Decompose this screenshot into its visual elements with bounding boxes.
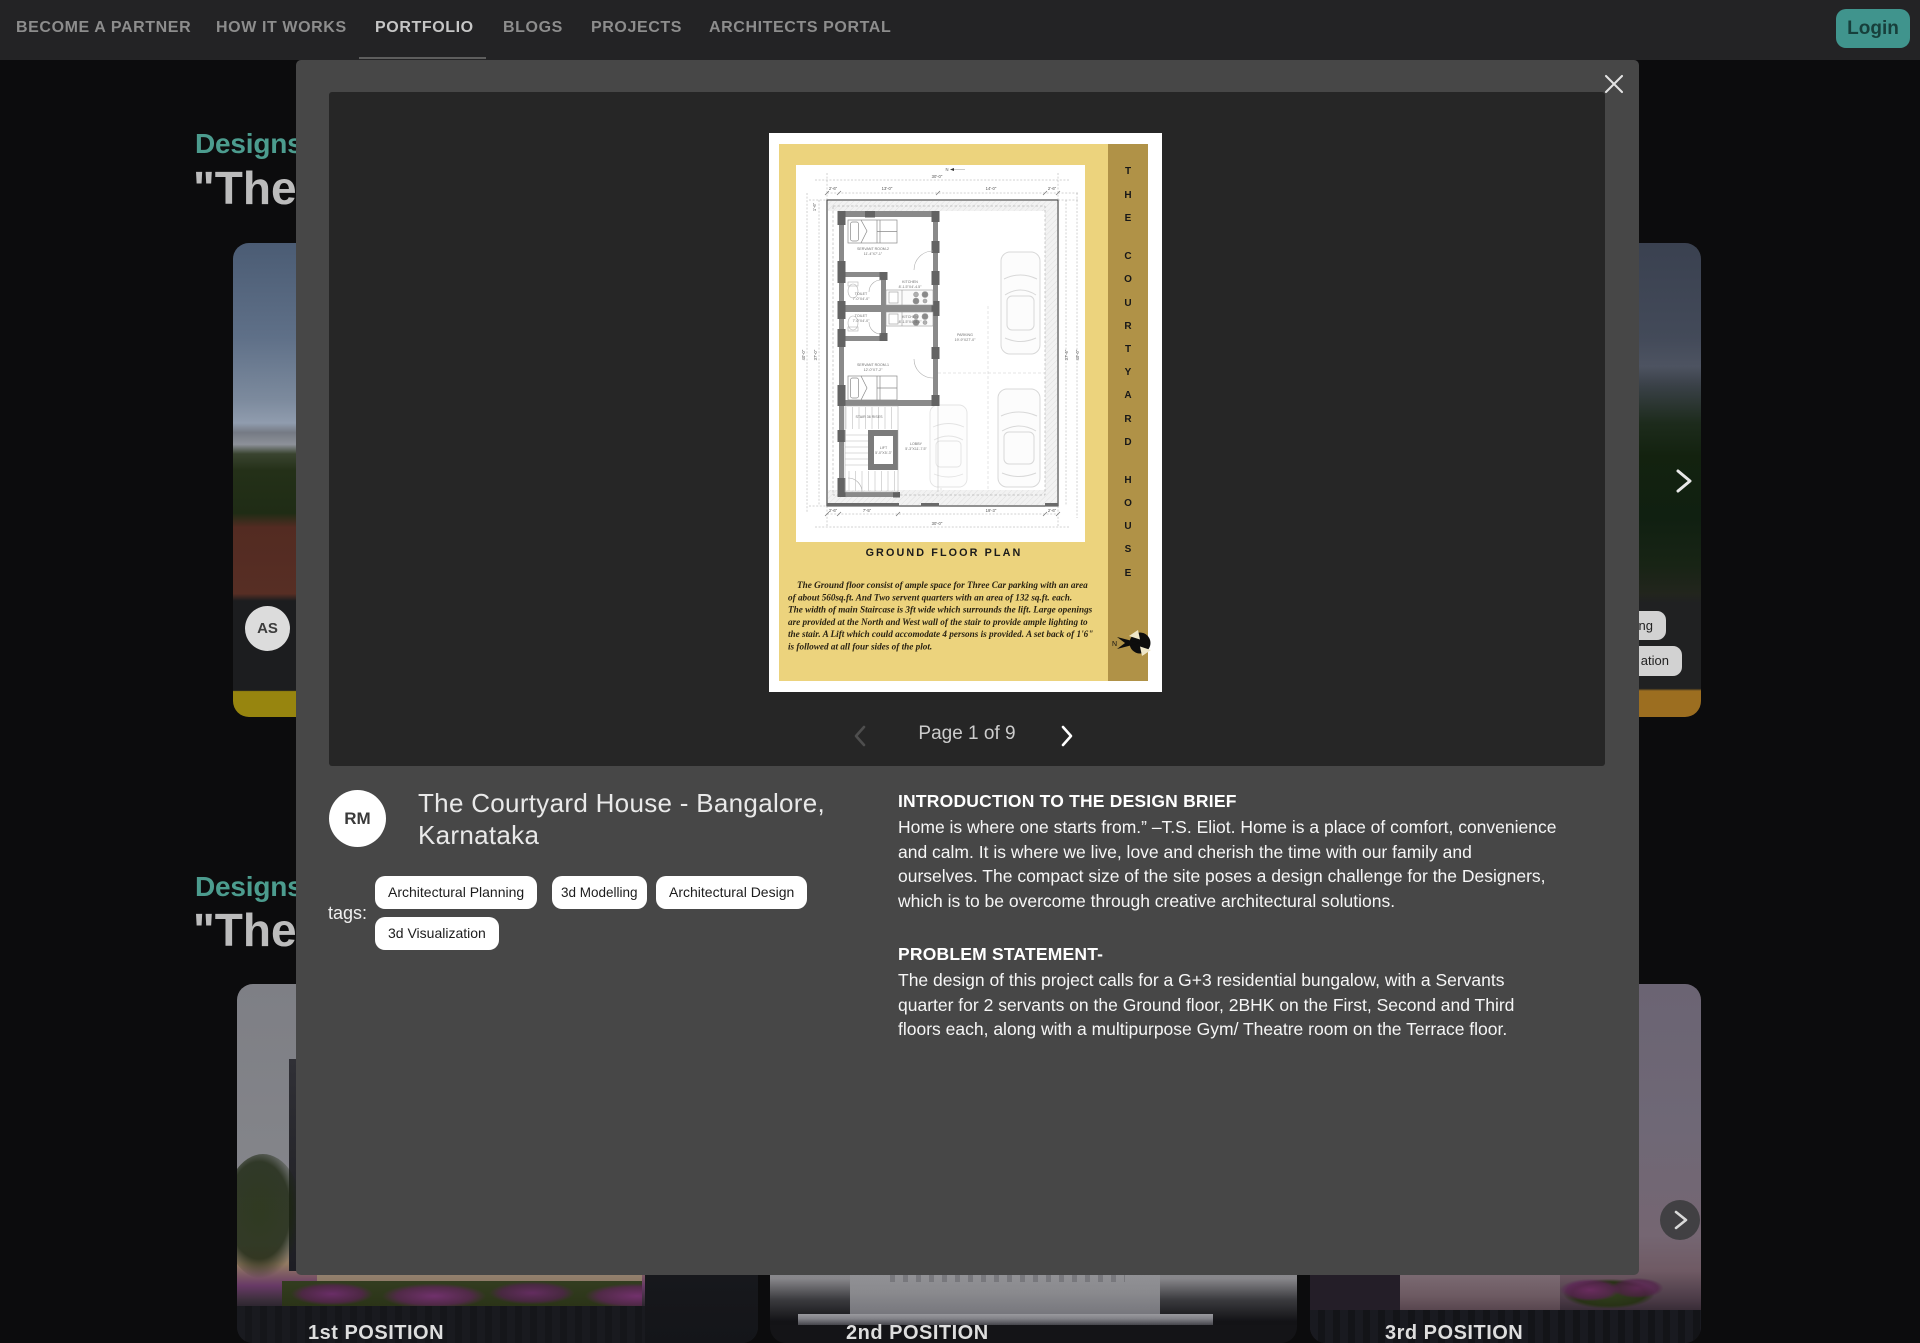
- svg-text:E: E: [1125, 568, 1132, 579]
- svg-text:A: A: [1124, 390, 1131, 401]
- svg-text:SERVANT ROOM-2: SERVANT ROOM-2: [857, 247, 889, 251]
- svg-text:2'-6": 2'-6": [829, 186, 838, 191]
- svg-text:7'-5": 7'-5": [863, 508, 872, 513]
- svg-text:7'-0"X4'-0": 7'-0"X4'-0": [853, 297, 870, 301]
- svg-text:R: R: [1124, 414, 1132, 425]
- svg-text:U: U: [1124, 298, 1131, 309]
- svg-text:S: S: [1125, 544, 1132, 555]
- svg-text:The Ground floor consist of am: The Ground floor consist of ample space …: [797, 580, 1088, 590]
- svg-text:C: C: [1124, 251, 1131, 262]
- svg-text:12'-0"X7'-2": 12'-0"X7'-2": [864, 368, 883, 372]
- svg-text:SERVANT ROOM-1: SERVANT ROOM-1: [857, 363, 889, 367]
- svg-text:11'-4"X7'-1": 11'-4"X7'-1": [864, 252, 883, 256]
- svg-text:O: O: [1124, 498, 1132, 509]
- svg-text:D: D: [1124, 437, 1131, 448]
- svg-text:Y: Y: [1125, 367, 1132, 378]
- svg-text:are provided at the North and: are provided at the North and West wall …: [788, 617, 1088, 627]
- svg-text:TOILET: TOILET: [855, 314, 868, 318]
- svg-text:2'-6": 2'-6": [1048, 186, 1057, 191]
- svg-text:N: N: [1112, 641, 1117, 648]
- svg-text:the stair. A Lift which could: the stair. A Lift which could accomodate…: [788, 629, 1093, 639]
- svg-text:19'-9"X27'-0": 19'-9"X27'-0": [955, 338, 976, 342]
- svg-text:LIFT: LIFT: [880, 446, 888, 450]
- svg-text:8'-1.5"X4'-4.5": 8'-1.5"X4'-4.5": [899, 285, 922, 289]
- svg-text:O: O: [1124, 274, 1132, 285]
- svg-text:2'-6": 2'-6": [829, 508, 838, 513]
- svg-text:KITCHEN: KITCHEN: [902, 280, 918, 284]
- svg-text:19'-3": 19'-3": [986, 508, 997, 513]
- svg-text:8'-1.5"X4'-4.5": 8'-1.5"X4'-4.5": [899, 320, 922, 324]
- svg-text:KITCHEN: KITCHEN: [902, 315, 918, 319]
- svg-text:is followed at all four sides: is followed at all four sides of the plo…: [788, 642, 932, 652]
- svg-text:T: T: [1125, 166, 1131, 177]
- svg-text:H: H: [1124, 475, 1131, 486]
- svg-text:N: N: [945, 167, 948, 172]
- svg-text:STAIR 36 RISES: STAIR 36 RISES: [855, 415, 883, 419]
- svg-text:37'-6": 37'-6": [1064, 349, 1069, 360]
- svg-text:37'-0": 37'-0": [813, 349, 818, 360]
- svg-text:H: H: [1124, 190, 1131, 201]
- svg-text:5'-3"X11'-7.5": 5'-3"X11'-7.5": [905, 447, 927, 451]
- svg-text:of about 560sq.ft. And Two se: of about 560sq.ft. And Two servent quart…: [788, 592, 1072, 602]
- svg-text:R: R: [1124, 321, 1132, 332]
- svg-text:GROUND FLOOR PLAN: GROUND FLOOR PLAN: [866, 547, 1023, 559]
- svg-text:14'-0": 14'-0": [986, 186, 997, 191]
- svg-text:E: E: [1125, 213, 1132, 224]
- svg-text:40'-0": 40'-0": [1075, 349, 1080, 360]
- svg-text:1'-6": 1'-6": [812, 202, 817, 211]
- svg-text:PARKING: PARKING: [957, 333, 973, 337]
- svg-text:U: U: [1124, 521, 1131, 532]
- svg-text:5'-0"X5'-3": 5'-0"X5'-3": [875, 451, 892, 455]
- svg-text:7'-0"X4'-0": 7'-0"X4'-0": [853, 319, 870, 323]
- svg-text:13'-0": 13'-0": [882, 186, 893, 191]
- svg-text:2'-6": 2'-6": [1048, 508, 1057, 513]
- svg-text:30'-0": 30'-0": [932, 174, 943, 179]
- svg-text:TOILET: TOILET: [855, 292, 868, 296]
- svg-text:LOBBY: LOBBY: [910, 442, 923, 446]
- svg-text:40'-0": 40'-0": [801, 349, 806, 360]
- svg-text:30'-0": 30'-0": [932, 521, 943, 526]
- svg-text:The width of main Staircase is: The width of main Staircase is 3ft wide …: [788, 605, 1093, 615]
- svg-text:T: T: [1125, 344, 1131, 355]
